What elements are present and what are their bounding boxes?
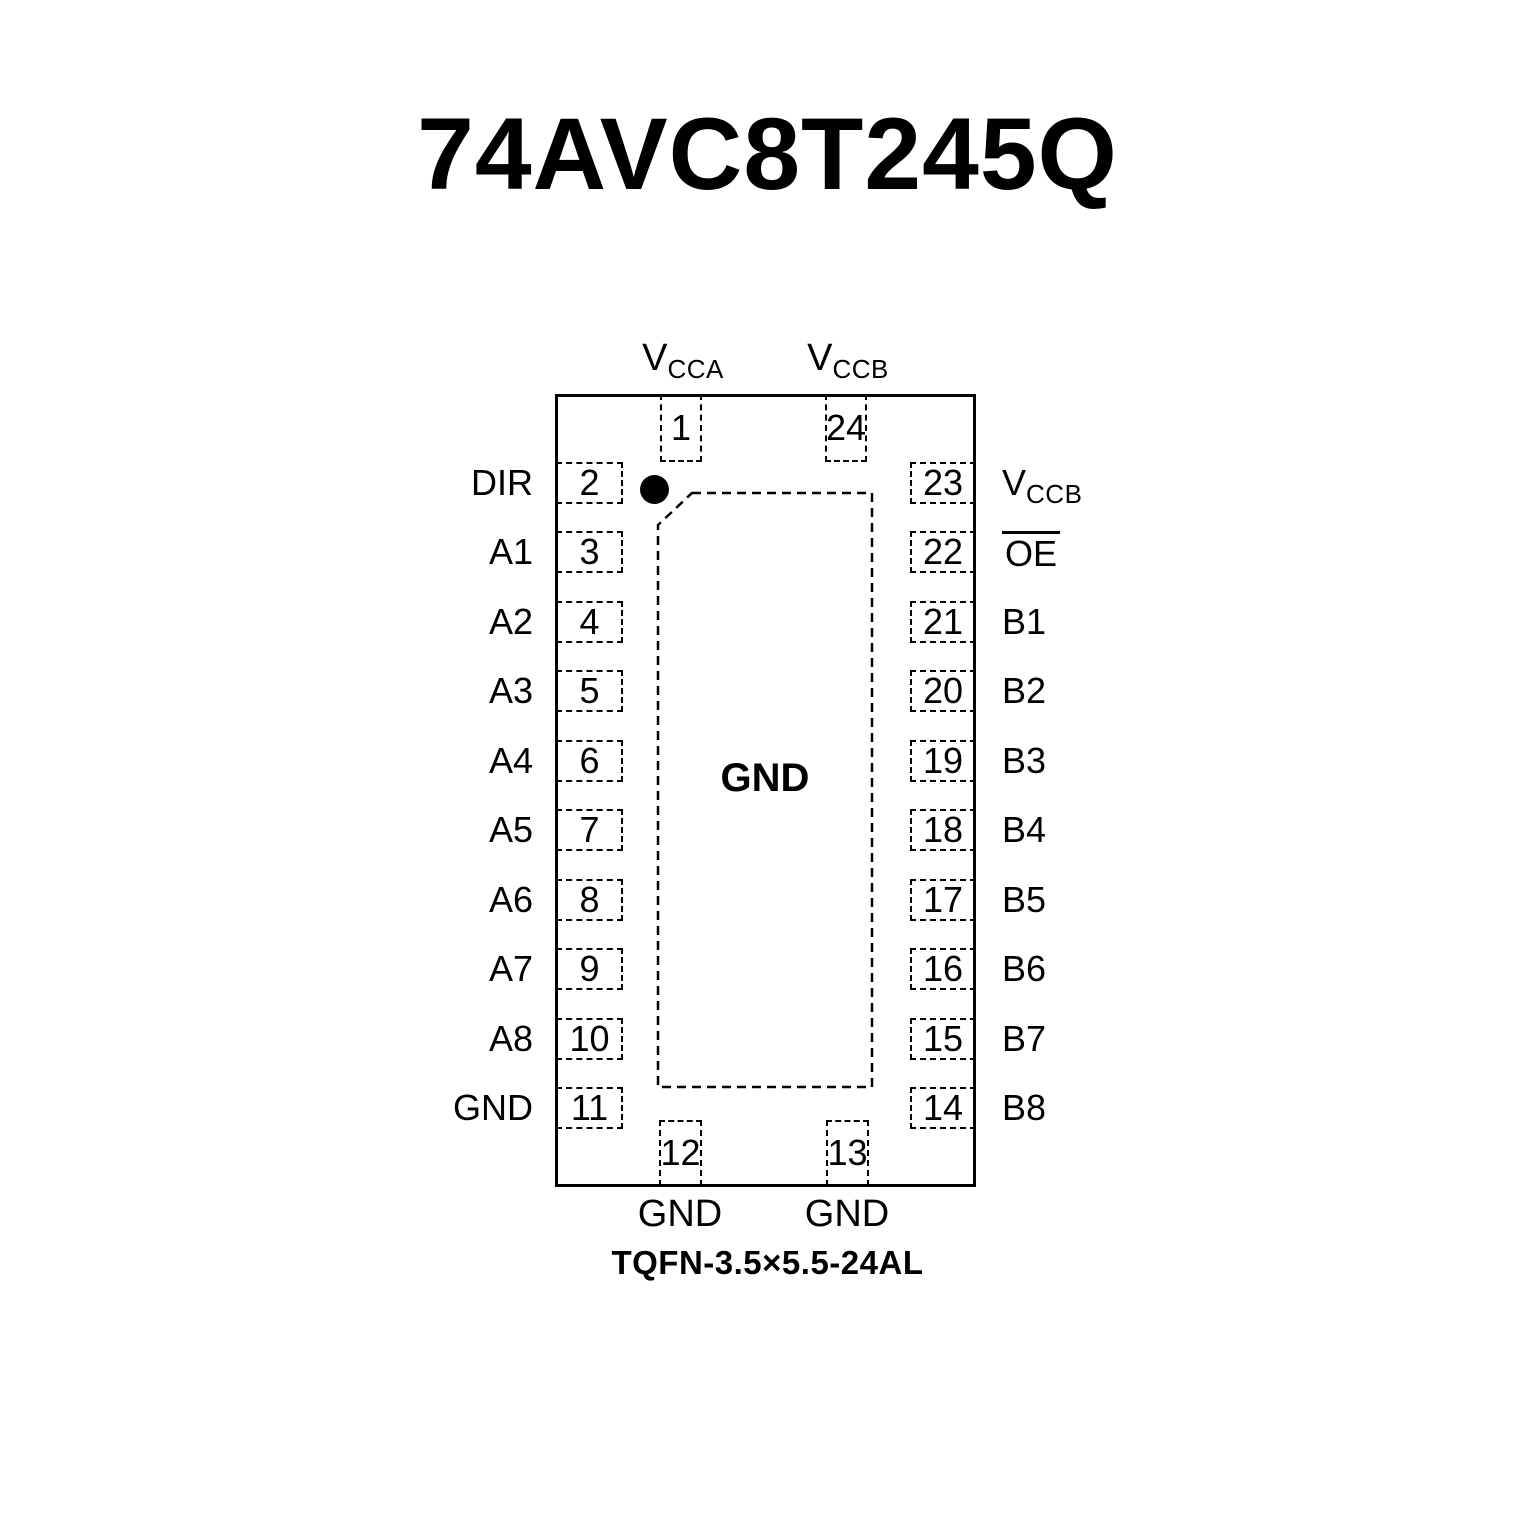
pin-number: 6	[579, 740, 599, 782]
pin-box-10: 10	[556, 1018, 623, 1060]
package-name: TQFN-3.5×5.5-24AL	[0, 1244, 1535, 1282]
pin-box-9: 9	[556, 948, 623, 990]
pin-name-b1: B1	[1002, 601, 1222, 643]
pin-number: 5	[579, 670, 599, 712]
pin-number: 14	[923, 1087, 963, 1129]
pin-number: 18	[923, 809, 963, 851]
pin-name-a5: A5	[333, 809, 533, 851]
pin-name-oe: OE	[1002, 531, 1222, 573]
pin-name-gnd-12: GND	[595, 1193, 765, 1236]
pin-box-6: 6	[556, 740, 623, 782]
pin-number: 20	[923, 670, 963, 712]
pin-box-1: 1	[660, 394, 702, 462]
pin-name-b6: B6	[1002, 948, 1222, 990]
pin-name-a3: A3	[333, 670, 533, 712]
pin-box-8: 8	[556, 879, 623, 921]
datasheet-page: 74AVC8T245Q GND 1 24 VCCA VCCB 2 3 4 5 6…	[0, 0, 1535, 1535]
pin-number: 3	[579, 531, 599, 573]
pin-number: 7	[579, 809, 599, 851]
pin-number: 12	[660, 1132, 700, 1174]
pin-name-b4: B4	[1002, 809, 1222, 851]
pin-box-3: 3	[556, 531, 623, 573]
pin-number: 2	[579, 462, 599, 504]
pin-number: 1	[671, 407, 691, 449]
pin-number: 13	[827, 1132, 867, 1174]
pin-number: 11	[571, 1087, 608, 1129]
pin-number: 24	[826, 407, 866, 449]
pin-box-22: 22	[910, 531, 976, 573]
pin-box-7: 7	[556, 809, 623, 851]
pin-name-a6: A6	[333, 879, 533, 921]
pin-box-12: 12	[659, 1120, 702, 1186]
pin-name-b8: B8	[1002, 1087, 1222, 1129]
overline-oe: OE	[1002, 531, 1060, 572]
pin-box-5: 5	[556, 670, 623, 712]
pin-number: 21	[923, 601, 963, 643]
pin-number: 15	[923, 1018, 963, 1060]
pin-number: 22	[923, 531, 963, 573]
pin-box-18: 18	[910, 809, 976, 851]
pin-name-vccb-24: VCCB	[763, 336, 933, 386]
pin-number: 4	[579, 601, 599, 643]
pin-number: 10	[569, 1018, 609, 1060]
pin-name-a1: A1	[333, 531, 533, 573]
pin-name-b5: B5	[1002, 879, 1222, 921]
pin-number: 8	[579, 879, 599, 921]
pin-name-a2: A2	[333, 601, 533, 643]
pin-name-gnd-13: GND	[762, 1193, 932, 1236]
pin-box-4: 4	[556, 601, 623, 643]
pin-box-21: 21	[910, 601, 976, 643]
pin-number: 9	[579, 948, 599, 990]
pin-box-11: 11	[556, 1087, 623, 1129]
pin-box-17: 17	[910, 879, 976, 921]
exposed-pad-label: GND	[658, 756, 872, 801]
pin-box-23: 23	[910, 462, 976, 504]
pin-number: 19	[923, 740, 963, 782]
pin-name-dir: DIR	[333, 462, 533, 504]
pin-name-b2: B2	[1002, 670, 1222, 712]
pin-name-b3: B3	[1002, 740, 1222, 782]
pin-name-b7: B7	[1002, 1018, 1222, 1060]
pin-box-14: 14	[910, 1087, 976, 1129]
pin-box-19: 19	[910, 740, 976, 782]
pin-name-vccb-23: VCCB	[1002, 462, 1222, 504]
pin-name-a8: A8	[333, 1018, 533, 1060]
pin-name-gnd-11: GND	[333, 1087, 533, 1129]
pin-box-16: 16	[910, 948, 976, 990]
pin-name-a7: A7	[333, 948, 533, 990]
pin-number: 17	[923, 879, 963, 921]
pin-box-15: 15	[910, 1018, 976, 1060]
page-title: 74AVC8T245Q	[0, 96, 1535, 213]
pin-number: 23	[923, 462, 963, 504]
pin-name-a4: A4	[333, 740, 533, 782]
pin-box-2: 2	[556, 462, 623, 504]
pin-box-24: 24	[825, 394, 867, 462]
pin-box-20: 20	[910, 670, 976, 712]
pin1-indicator-dot	[640, 475, 669, 504]
pin-number: 16	[923, 948, 963, 990]
pin-box-13: 13	[826, 1120, 869, 1186]
pin-name-vcca: VCCA	[598, 336, 768, 386]
